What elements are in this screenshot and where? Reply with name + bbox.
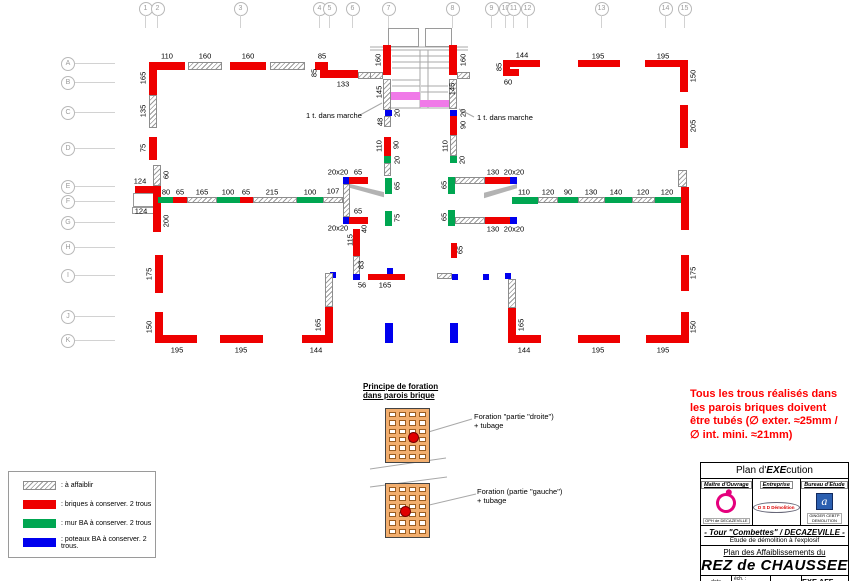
wall-h bbox=[323, 197, 343, 203]
wall-g bbox=[655, 197, 681, 203]
wall-h bbox=[343, 184, 350, 217]
wall-b bbox=[483, 274, 489, 280]
brick-hole bbox=[409, 520, 416, 525]
grid-row-bubble: A bbox=[61, 57, 75, 71]
legend-item: : à affaiblir bbox=[9, 476, 155, 495]
wall-g bbox=[605, 197, 632, 203]
dimension-label: 120 bbox=[661, 188, 674, 197]
wall-r bbox=[384, 137, 391, 156]
wall-h bbox=[508, 279, 516, 308]
wall-r bbox=[485, 177, 510, 184]
grid-row-bubble: B bbox=[61, 76, 75, 90]
plan-title-row: Plan des Affaiblissements du REZ de CHAU… bbox=[701, 546, 848, 576]
brick-hole bbox=[419, 437, 426, 442]
wall-r bbox=[349, 177, 368, 184]
dsd-logo-text: D S D Démolition bbox=[753, 502, 800, 513]
dimension-label: 195 bbox=[657, 346, 670, 355]
titleblock-logos: Maître d'Ouvrage OPH de DECAZEVILLE Entr… bbox=[701, 479, 848, 526]
scale-cell: éch. : - 1/100ème (A3) bbox=[732, 576, 771, 581]
dimension-label: 110 bbox=[518, 188, 530, 197]
brick-hole bbox=[419, 520, 426, 525]
wall-h bbox=[383, 79, 391, 110]
grid-column-tick bbox=[601, 15, 602, 28]
brick-hole bbox=[409, 529, 416, 534]
grid-column-tick bbox=[491, 15, 492, 28]
wall-g bbox=[448, 177, 455, 194]
dimension-label: 60 bbox=[504, 78, 512, 87]
wall-r bbox=[503, 69, 519, 76]
wall-p bbox=[420, 100, 449, 107]
brick-hole bbox=[419, 420, 426, 425]
grid-row-bubble: C bbox=[61, 106, 75, 120]
dimension-label: 75 bbox=[139, 144, 148, 152]
wall-h bbox=[149, 95, 157, 128]
dimension-label: 20 bbox=[458, 156, 467, 164]
wall-h bbox=[370, 72, 383, 79]
wall-b bbox=[452, 274, 458, 280]
grid-row-tick bbox=[75, 275, 115, 276]
grid-row-tick bbox=[75, 63, 115, 64]
wall-h bbox=[457, 72, 470, 79]
engineer-role: Bureau d'Etude bbox=[801, 481, 847, 489]
brick-hole bbox=[399, 429, 406, 434]
scale-label: éch. : bbox=[732, 576, 746, 581]
dimension-label: 145 bbox=[375, 86, 384, 99]
dimension-label: 130 bbox=[487, 225, 500, 234]
indice-cell: Indice A bbox=[771, 576, 802, 581]
wall-r bbox=[680, 105, 688, 148]
dimension-label: 215 bbox=[266, 188, 279, 197]
brick-hole bbox=[389, 429, 396, 434]
dimension-label: 65 bbox=[242, 188, 250, 197]
grid-column-tick bbox=[665, 15, 666, 28]
header-suffix: cution bbox=[786, 465, 813, 476]
stair-annotation: 1 t. dans marche bbox=[477, 113, 533, 122]
wall-g bbox=[385, 178, 392, 194]
dimension-label: 140 bbox=[610, 188, 623, 197]
titleblock-header: Plan d'EXEcution bbox=[701, 463, 848, 479]
dimension-label: 110 bbox=[441, 140, 450, 152]
grid-column-tick bbox=[319, 15, 320, 28]
project-subtitle: Etude de démolition à l'explosif bbox=[701, 537, 848, 544]
date-cell: date 11-07-12 bbox=[701, 576, 732, 581]
wall-h bbox=[384, 116, 391, 127]
dimension-label: 195 bbox=[592, 346, 605, 355]
grid-row-tick bbox=[75, 186, 115, 187]
wall-o bbox=[388, 28, 419, 47]
dimension-label: 56 bbox=[358, 281, 366, 290]
dimension-label: 145 bbox=[448, 83, 457, 96]
wall-r bbox=[320, 68, 328, 78]
wall-r bbox=[149, 137, 157, 160]
ref-value: EXE AFF - 1.2 bbox=[802, 577, 848, 581]
grid-column-bubble: 7 bbox=[382, 2, 396, 16]
dimension-label: 20 bbox=[393, 156, 402, 164]
legend-item: : poteaux BA à conserver. 2 trous. bbox=[9, 533, 155, 552]
wall-r bbox=[155, 255, 163, 293]
grid-row-bubble: G bbox=[61, 216, 75, 230]
red-swatch bbox=[23, 500, 56, 509]
brick-hole bbox=[389, 454, 396, 459]
grid-row-tick bbox=[75, 148, 115, 149]
wall-r bbox=[240, 197, 253, 203]
wall-g bbox=[385, 211, 392, 226]
grid-column-bubble: 8 bbox=[446, 2, 460, 16]
wall-r bbox=[508, 335, 541, 343]
wall-h bbox=[253, 197, 297, 203]
brick-hole bbox=[419, 412, 426, 417]
grid-column-tick bbox=[240, 15, 241, 28]
wall-h bbox=[632, 197, 655, 203]
header-prefix: Plan d' bbox=[736, 465, 766, 476]
wall-g bbox=[217, 197, 240, 203]
dimension-label: 90 bbox=[564, 188, 572, 197]
wall-g bbox=[512, 197, 538, 204]
ref-cell: EXE AFF - 1.2 bbox=[802, 576, 848, 581]
legend-label: : mur BA à conserver. 2 trous bbox=[61, 520, 151, 527]
dimension-label: 160 bbox=[242, 52, 255, 61]
wall-r bbox=[680, 60, 688, 92]
brick-hole bbox=[389, 520, 396, 525]
grid-column-tick bbox=[329, 15, 330, 28]
dimension-label: 165 bbox=[139, 72, 148, 85]
wall-r bbox=[302, 335, 333, 343]
grid-column-bubble: 14 bbox=[659, 2, 673, 16]
grid-row-bubble: F bbox=[61, 195, 75, 209]
wall-r bbox=[578, 335, 620, 343]
grid-column-tick bbox=[388, 15, 389, 28]
titleblock-bottom: date 11-07-12 éch. : - 1/100ème (A3) Ind… bbox=[701, 576, 848, 581]
brick-hole bbox=[419, 529, 426, 534]
project-row: - Tour "Combettes" / DECAZEVILLE - Etude… bbox=[701, 526, 848, 546]
wall-r bbox=[645, 60, 682, 67]
brick-hole bbox=[419, 454, 426, 459]
brick-hole bbox=[399, 437, 406, 442]
wall-r bbox=[173, 197, 187, 203]
dimension-label: 65 bbox=[440, 181, 449, 189]
brick-hole bbox=[409, 420, 416, 425]
brick-hole bbox=[389, 504, 396, 509]
dimension-label: 135 bbox=[139, 105, 148, 118]
wall-h bbox=[384, 163, 391, 176]
dimension-label: 100 bbox=[304, 188, 317, 197]
wall-r bbox=[349, 217, 368, 224]
brick-hole bbox=[419, 487, 426, 492]
dimension-label: 195 bbox=[657, 52, 670, 61]
wall-g bbox=[558, 197, 578, 203]
dimension-label: 20x20 bbox=[328, 168, 348, 177]
wall-r bbox=[149, 62, 157, 95]
dimension-label: 85 bbox=[318, 52, 326, 61]
dimension-label: 175 bbox=[689, 267, 698, 280]
engineer-caption: GINGER CEBTP DEMOLITION bbox=[807, 513, 841, 524]
grid-row-tick bbox=[75, 316, 115, 317]
wall-h bbox=[270, 62, 305, 70]
wall-h bbox=[678, 170, 687, 187]
dimension-label: 107 bbox=[327, 187, 340, 196]
wall-g bbox=[384, 156, 391, 163]
wall-r bbox=[368, 274, 405, 280]
dimension-label: 100 bbox=[222, 188, 235, 197]
wall-b bbox=[387, 268, 393, 274]
dimension-label: 150 bbox=[689, 321, 698, 334]
dimension-label: 130 bbox=[585, 188, 598, 197]
dimension-label: 40 bbox=[360, 225, 369, 233]
wall-r bbox=[383, 45, 391, 75]
legend-label: : briques à conserver. 2 trous bbox=[61, 501, 151, 508]
grid-row-tick bbox=[75, 247, 115, 248]
owner-caption: OPH de DECAZEVILLE bbox=[703, 518, 749, 525]
brick-hole bbox=[399, 445, 406, 450]
dimension-label: 75 bbox=[393, 214, 402, 222]
owner-role: Maître d'Ouvrage bbox=[701, 481, 752, 489]
wall-r bbox=[220, 335, 263, 343]
dimension-label: 120 bbox=[637, 188, 650, 197]
title-block: Plan d'EXEcution Maître d'Ouvrage OPH de… bbox=[700, 462, 849, 581]
wall-h bbox=[153, 165, 161, 186]
grid-column-tick bbox=[157, 15, 158, 28]
brick-hole bbox=[399, 487, 406, 492]
grid-column-tick bbox=[684, 15, 685, 28]
brick-hole bbox=[409, 412, 416, 417]
dimension-label: 144 bbox=[310, 346, 323, 355]
dimension-label: 150 bbox=[145, 321, 154, 334]
dimension-label: 115 bbox=[346, 234, 355, 246]
wall-r bbox=[485, 217, 510, 224]
grid-column-bubble: 11 bbox=[507, 2, 521, 16]
wall-r bbox=[681, 187, 689, 230]
wall-b bbox=[450, 323, 458, 343]
grid-row-bubble: E bbox=[61, 180, 75, 194]
dimension-label: 60 bbox=[162, 171, 171, 179]
dimension-label: 48 bbox=[376, 118, 385, 126]
plan-title: REZ de CHAUSSEE bbox=[701, 557, 848, 574]
wall-b bbox=[510, 177, 517, 184]
brick-hole bbox=[409, 445, 416, 450]
brick-hole bbox=[389, 487, 396, 492]
grid-row-bubble: D bbox=[61, 142, 75, 156]
dimension-label: 65 bbox=[440, 213, 449, 221]
brick-hole bbox=[419, 429, 426, 434]
dimension-label: 20x20 bbox=[504, 168, 524, 177]
dimension-label: 195 bbox=[171, 346, 184, 355]
brick-hole bbox=[399, 495, 406, 500]
contractor-role: Entreprise bbox=[760, 481, 793, 489]
grid-column-bubble: 3 bbox=[234, 2, 248, 16]
legend-label: : poteaux BA à conserver. 2 trous. bbox=[61, 536, 155, 550]
dimension-label: 160 bbox=[459, 54, 468, 67]
dimension-label: 83 bbox=[357, 261, 366, 269]
gray-line bbox=[360, 103, 382, 115]
grid-row-tick bbox=[75, 340, 115, 341]
wall-g bbox=[297, 197, 323, 203]
wall-g bbox=[450, 156, 457, 163]
dimension-label: 124 bbox=[135, 207, 148, 216]
grid-column-bubble: 13 bbox=[595, 2, 609, 16]
brick-hole bbox=[409, 495, 416, 500]
dimension-label: 160 bbox=[374, 54, 383, 67]
dimension-label: 144 bbox=[518, 346, 531, 355]
wall-h bbox=[437, 273, 452, 279]
drilling-note: Tous les trous réalisés dans les parois … bbox=[690, 388, 850, 442]
dimension-label: 205 bbox=[689, 120, 698, 133]
grid-column-tick bbox=[505, 15, 506, 28]
grid-row-bubble: I bbox=[61, 269, 75, 283]
grid-row-tick bbox=[75, 201, 115, 202]
dimension-label: 85 bbox=[495, 63, 504, 71]
dimension-label: 65 bbox=[354, 168, 362, 177]
brick-hole bbox=[399, 412, 406, 417]
wall-h bbox=[188, 62, 222, 70]
dimension-label: 65 bbox=[393, 182, 402, 190]
dimension-label: 65 bbox=[456, 246, 465, 254]
brick-hole bbox=[419, 512, 426, 517]
brick-hole bbox=[399, 454, 406, 459]
grid-row-bubble: H bbox=[61, 241, 75, 255]
dsd-logo: D S D Démolition bbox=[753, 489, 800, 525]
brick-hole bbox=[399, 420, 406, 425]
wall-g bbox=[448, 210, 455, 226]
wall-r bbox=[646, 335, 683, 343]
dimension-label: 124 bbox=[134, 177, 147, 186]
wall-r bbox=[153, 186, 161, 232]
wall-b bbox=[353, 274, 360, 280]
wall-h bbox=[187, 197, 217, 203]
ginger-logo: a bbox=[801, 489, 848, 513]
drawing-canvas: 123456789101112131415ABCDEFGHIJK 1101601… bbox=[0, 0, 850, 581]
dimension-label: 200 bbox=[162, 215, 171, 228]
wall-r bbox=[230, 62, 266, 70]
foration-dot bbox=[408, 432, 419, 443]
hatch-swatch bbox=[23, 481, 56, 490]
dimension-label: 110 bbox=[161, 52, 173, 61]
brick-hole bbox=[419, 445, 426, 450]
dimension-label: 130 bbox=[487, 168, 500, 177]
grid-row-tick bbox=[75, 82, 115, 83]
blue-swatch bbox=[23, 538, 56, 547]
wall-r bbox=[155, 335, 197, 343]
wall-r bbox=[449, 45, 457, 75]
brick-hole bbox=[419, 495, 426, 500]
wall-h bbox=[455, 177, 485, 184]
dimension-label: 165 bbox=[517, 319, 526, 332]
grid-column-tick bbox=[527, 15, 528, 28]
wall-b bbox=[510, 217, 517, 224]
brick-hole bbox=[389, 412, 396, 417]
dimension-label: 165 bbox=[196, 188, 209, 197]
brick-hole bbox=[399, 520, 406, 525]
project-name: - Tour "Combettes" / DECAZEVILLE - bbox=[701, 528, 848, 537]
stair-annotation: 1 t. dans marche bbox=[306, 111, 362, 120]
legend-label: : à affaiblir bbox=[61, 482, 93, 489]
brick-hole bbox=[389, 529, 396, 534]
dimension-label: 175 bbox=[145, 268, 154, 281]
dimension-label: 20 bbox=[393, 109, 402, 117]
foration-label: Foration "partie "droite") + tubage bbox=[474, 412, 554, 430]
wall-h bbox=[578, 197, 605, 203]
brick-hole bbox=[389, 445, 396, 450]
dimension-label: 150 bbox=[689, 70, 698, 83]
grid-column-tick bbox=[513, 15, 514, 28]
wall-b bbox=[385, 323, 393, 343]
dimension-label: 160 bbox=[199, 52, 212, 61]
grid-column-tick bbox=[352, 15, 353, 28]
dimension-label: 133 bbox=[337, 80, 350, 89]
dimension-label: 80 bbox=[162, 188, 170, 197]
wall-h bbox=[450, 135, 457, 156]
dimension-label: 20 bbox=[459, 109, 468, 117]
grid-row-bubble: K bbox=[61, 334, 75, 348]
dimension-label: 110 bbox=[375, 140, 384, 152]
plan-line: Plan des Affaiblissements du bbox=[701, 548, 848, 557]
grid-row-tick bbox=[75, 222, 115, 223]
grid-row-tick bbox=[75, 112, 115, 113]
foration-dot bbox=[400, 506, 411, 517]
dimension-label: 195 bbox=[235, 346, 248, 355]
wall-r bbox=[450, 116, 457, 135]
foration-label: Foration (partie "gauche") + tubage bbox=[477, 487, 562, 505]
oph-logo-icon bbox=[714, 490, 740, 516]
wall-rampL bbox=[350, 184, 384, 198]
brick-hole bbox=[409, 454, 416, 459]
ginger-logo-icon: a bbox=[816, 493, 833, 510]
grid-column-bubble: 15 bbox=[678, 2, 692, 16]
brick-hole bbox=[389, 420, 396, 425]
foration-title: Principe de foration dans parois brique bbox=[363, 382, 438, 400]
brick-hole bbox=[409, 487, 416, 492]
wall-o bbox=[425, 28, 452, 47]
brick-hole bbox=[389, 437, 396, 442]
dimension-label: 65 bbox=[354, 207, 362, 216]
grid-column-bubble: 2 bbox=[151, 2, 165, 16]
dimension-label: 65 bbox=[176, 188, 184, 197]
dimension-label: 85 bbox=[310, 69, 319, 77]
legend-box: : à affaiblir : briques à conserver. 2 t… bbox=[8, 471, 156, 558]
dimension-label: 90 bbox=[459, 121, 468, 129]
grid-row-bubble: J bbox=[61, 310, 75, 324]
contractor-column: Entreprise D S D Démolition bbox=[753, 479, 801, 525]
legend-item: : mur BA à conserver. 2 trous bbox=[9, 514, 155, 533]
wall-r bbox=[510, 60, 540, 67]
brick-hole bbox=[419, 504, 426, 509]
dimension-label: 144 bbox=[516, 51, 529, 60]
wall-p bbox=[391, 92, 420, 100]
header-exe: EXE bbox=[766, 465, 786, 476]
oph-logo bbox=[701, 489, 752, 518]
dimension-label: 20x20 bbox=[504, 225, 524, 234]
wall-h bbox=[325, 273, 333, 307]
grid-column-bubble: 5 bbox=[323, 2, 337, 16]
green-swatch bbox=[23, 519, 56, 528]
legend-item: : briques à conserver. 2 trous bbox=[9, 495, 155, 514]
brick-hole bbox=[389, 512, 396, 517]
wall-o bbox=[133, 193, 155, 207]
owner-column: Maître d'Ouvrage OPH de DECAZEVILLE bbox=[701, 479, 753, 525]
grid-column-bubble: 6 bbox=[346, 2, 360, 16]
brick-hole bbox=[389, 495, 396, 500]
wall-r bbox=[328, 70, 358, 78]
grid-column-bubble: 9 bbox=[485, 2, 499, 16]
dimension-label: 120 bbox=[542, 188, 555, 197]
wall-h bbox=[538, 197, 558, 203]
wall-h bbox=[455, 217, 485, 224]
dimension-label: 20x20 bbox=[328, 224, 348, 233]
grid-column-bubble: 12 bbox=[521, 2, 535, 16]
dimension-label: 165 bbox=[379, 281, 392, 290]
wall-r bbox=[578, 60, 620, 67]
dimension-label: 195 bbox=[592, 52, 605, 61]
dimension-label: 165 bbox=[314, 319, 323, 332]
